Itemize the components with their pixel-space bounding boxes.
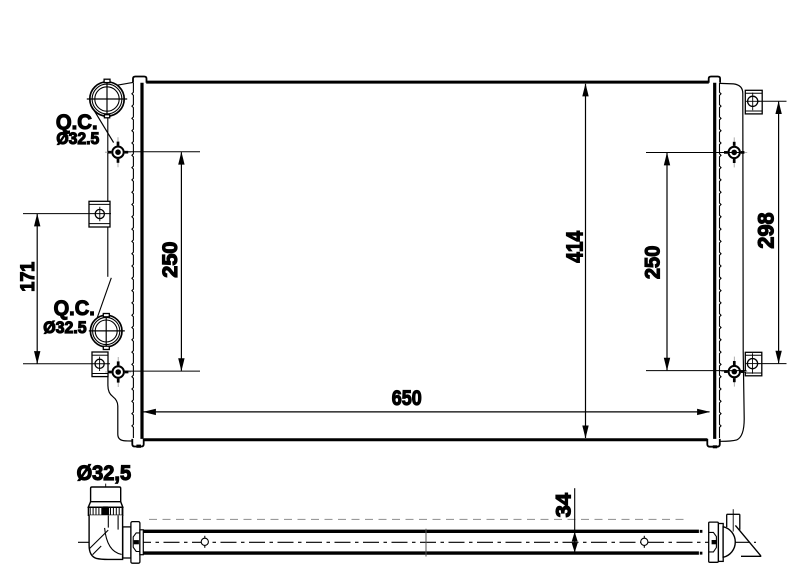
svg-text:250: 250 (640, 246, 664, 280)
svg-text:Ø32.5: Ø32.5 (56, 129, 99, 148)
svg-text:298: 298 (754, 212, 779, 248)
svg-text:414: 414 (562, 231, 588, 263)
svg-text:250: 250 (159, 242, 182, 278)
svg-text:171: 171 (18, 261, 39, 291)
svg-text:650: 650 (392, 387, 422, 410)
svg-text:Q.C.: Q.C. (54, 295, 95, 320)
svg-text:Ø32.5: Ø32.5 (43, 318, 86, 337)
svg-text:Ø32,5: Ø32,5 (77, 462, 132, 485)
svg-text:34: 34 (550, 493, 575, 517)
